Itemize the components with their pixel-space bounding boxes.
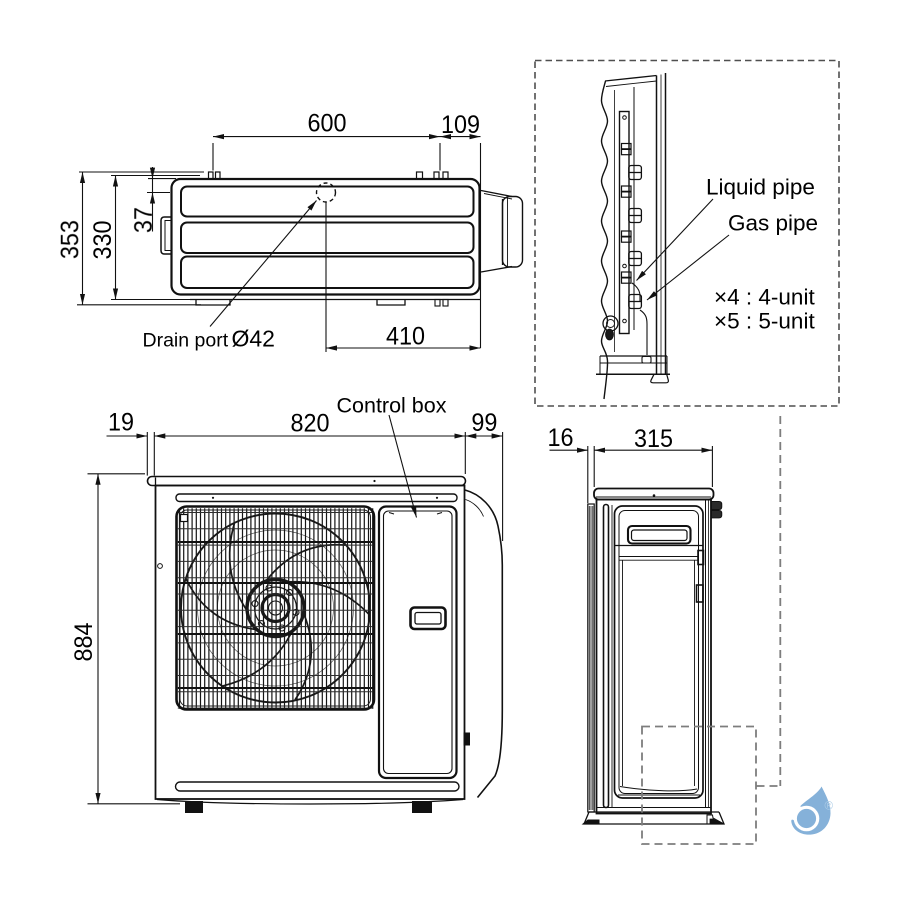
svg-text:19: 19 (108, 409, 134, 437)
svg-text:®: ® (825, 801, 834, 813)
svg-text:×5 : 5-unit: ×5 : 5-unit (714, 309, 815, 334)
svg-text:16: 16 (548, 424, 574, 452)
svg-text:×4 : 4-unit: ×4 : 4-unit (714, 285, 815, 310)
svg-text:Gas pipe: Gas pipe (728, 211, 818, 236)
svg-text:Liquid pipe: Liquid pipe (706, 175, 815, 200)
svg-text:37: 37 (130, 207, 158, 233)
svg-text:600: 600 (308, 110, 347, 138)
svg-text:884: 884 (70, 622, 98, 661)
svg-text:315: 315 (634, 425, 673, 453)
svg-text:Control box: Control box (337, 394, 447, 418)
svg-text:353: 353 (56, 220, 84, 259)
svg-text:820: 820 (291, 410, 330, 438)
svg-text:Drain port: Drain port (143, 330, 229, 352)
svg-text:330: 330 (89, 221, 117, 260)
svg-text:99: 99 (471, 409, 497, 437)
svg-text:410: 410 (386, 323, 425, 351)
svg-text:109: 109 (441, 111, 480, 139)
svg-text:Ø42: Ø42 (232, 326, 275, 352)
